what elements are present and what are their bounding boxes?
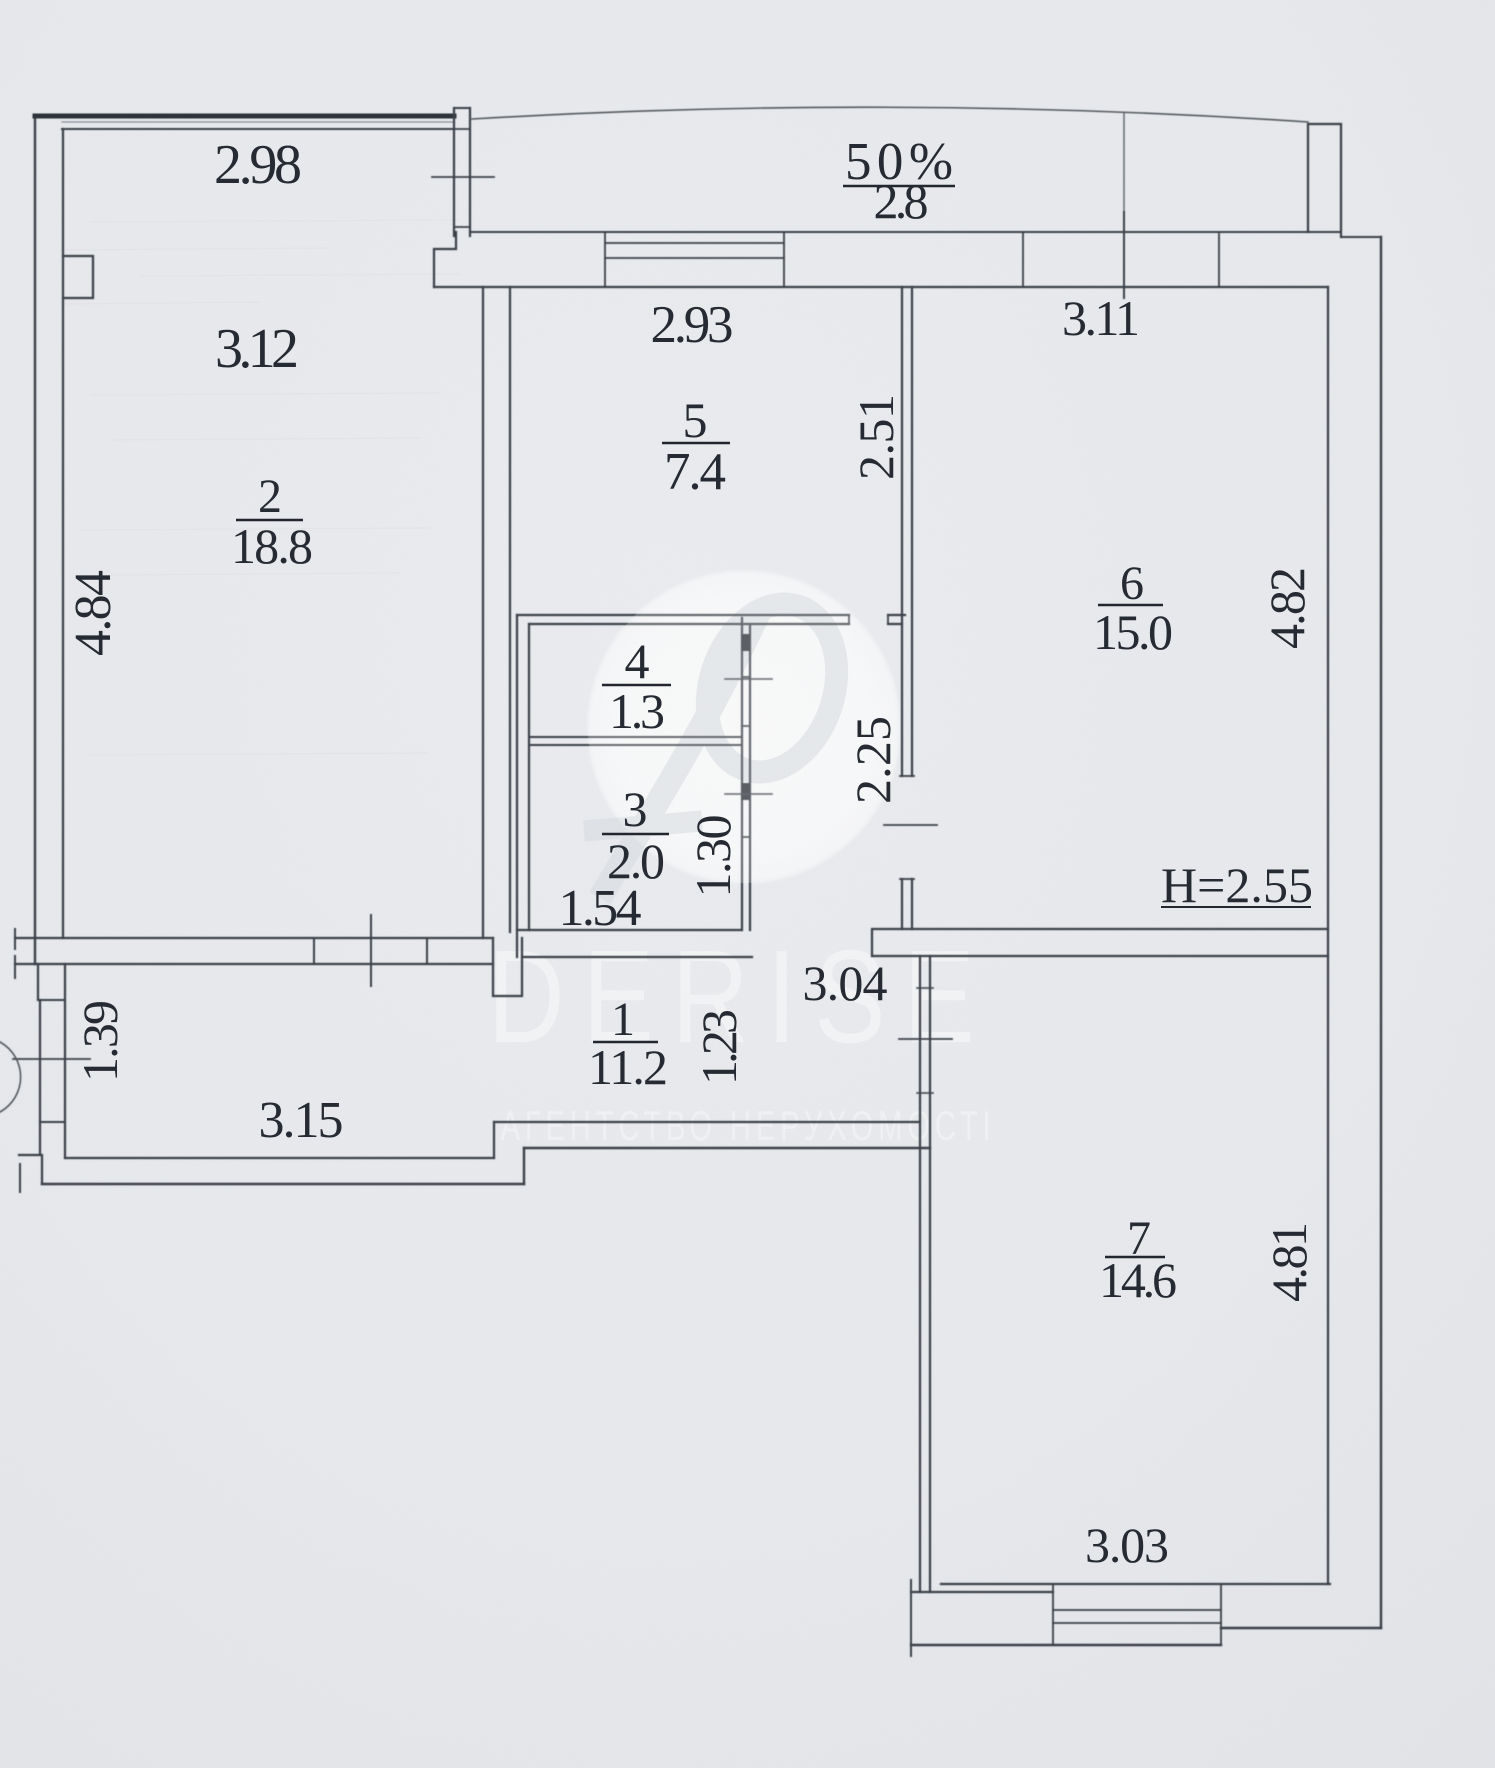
- svg-text:3.11: 3.11: [1062, 290, 1140, 346]
- svg-text:3.04: 3.04: [803, 955, 888, 1011]
- svg-text:4.82: 4.82: [1259, 567, 1315, 649]
- svg-text:1.3: 1.3: [609, 683, 665, 739]
- svg-text:2: 2: [258, 470, 282, 523]
- svg-text:1.39: 1.39: [72, 1000, 128, 1082]
- svg-text:H=2.55: H=2.55: [1161, 857, 1313, 913]
- svg-text:3.12: 3.12: [215, 318, 299, 380]
- svg-text:1.30: 1.30: [685, 815, 741, 898]
- svg-text:4: 4: [625, 633, 650, 689]
- svg-text:11.2: 11.2: [588, 1039, 668, 1095]
- svg-text:15.0: 15.0: [1093, 604, 1173, 660]
- svg-text:7.4: 7.4: [664, 443, 726, 501]
- svg-text:4.81: 4.81: [1261, 1222, 1317, 1302]
- svg-text:5: 5: [683, 392, 708, 448]
- svg-text:2.93: 2.93: [651, 296, 734, 354]
- svg-text:3.15: 3.15: [259, 1092, 344, 1149]
- svg-text:18.8: 18.8: [231, 518, 313, 574]
- svg-text:6: 6: [1120, 557, 1144, 610]
- svg-text:4.84: 4.84: [65, 570, 122, 656]
- svg-text:1.54: 1.54: [559, 880, 642, 937]
- svg-text:3: 3: [623, 781, 648, 837]
- svg-text:2.8: 2.8: [874, 173, 929, 229]
- svg-text:2.25: 2.25: [845, 716, 901, 804]
- svg-text:2.98: 2.98: [214, 134, 302, 196]
- svg-text:14.6: 14.6: [1099, 1252, 1177, 1308]
- svg-text:3.03: 3.03: [1085, 1517, 1169, 1573]
- svg-text:2.51: 2.51: [848, 394, 904, 480]
- svg-text:1.23: 1.23: [691, 1009, 747, 1085]
